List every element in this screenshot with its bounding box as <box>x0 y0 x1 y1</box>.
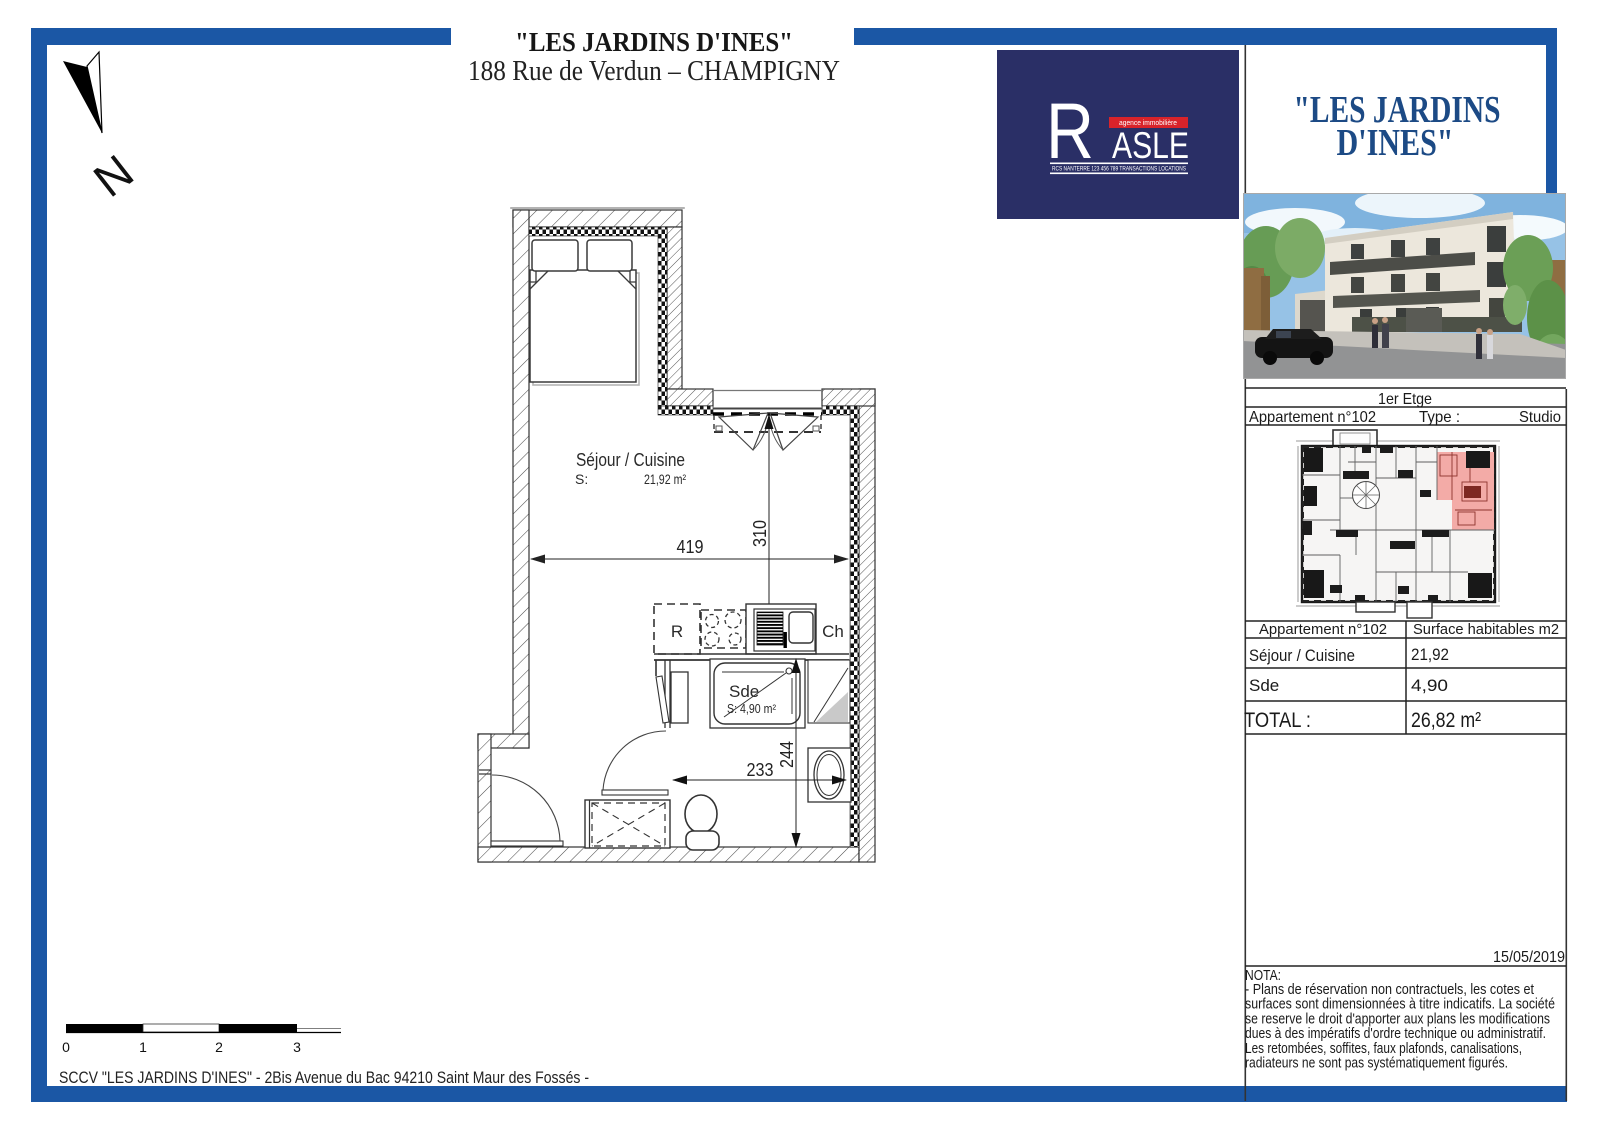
svg-text:26,82 m²: 26,82 m² <box>1411 709 1481 732</box>
svg-text:D'INES": D'INES" <box>1337 122 1454 164</box>
svg-text:Appartement n°102: Appartement n°102 <box>1249 409 1376 426</box>
svg-text:1er Etge: 1er Etge <box>1378 391 1432 408</box>
svg-text:Sde: Sde <box>1249 676 1279 695</box>
svg-text:21,92: 21,92 <box>1411 645 1449 664</box>
svg-text:Sde: Sde <box>729 682 759 701</box>
svg-text:RCS NANTERRE 123 456 789 TRANS: RCS NANTERRE 123 456 789 TRANSACTIONS LO… <box>1052 166 1186 173</box>
svg-text:SCCV "LES JARDINS D'INES" - 2B: SCCV "LES JARDINS D'INES" - 2Bis Avenue … <box>59 1068 589 1087</box>
svg-text:Studio: Studio <box>1519 409 1561 426</box>
svg-text:310: 310 <box>750 520 770 547</box>
svg-text:Ch: Ch <box>822 622 844 641</box>
svg-text:0: 0 <box>62 1039 70 1055</box>
svg-text:1: 1 <box>139 1039 147 1055</box>
svg-text:419: 419 <box>677 537 704 557</box>
svg-text:S:: S: <box>575 471 588 487</box>
svg-text:radiateurs ne sont pas systéma: radiateurs ne sont pas systématiquement … <box>1245 1055 1508 1072</box>
svg-text:21,92 m²: 21,92 m² <box>644 471 686 487</box>
svg-text:R: R <box>671 622 683 641</box>
svg-text:ASLE: ASLE <box>1112 125 1189 166</box>
svg-text:TOTAL :: TOTAL : <box>1244 709 1311 732</box>
svg-text:233: 233 <box>747 760 774 780</box>
svg-text:Surface habitables m2: Surface habitables m2 <box>1413 621 1559 638</box>
svg-text:Type :: Type : <box>1419 409 1460 426</box>
svg-text:Séjour / Cuisine: Séjour / Cuisine <box>576 450 685 470</box>
svg-text:R: R <box>1046 86 1094 175</box>
svg-text:3: 3 <box>293 1039 301 1055</box>
svg-text:4,90: 4,90 <box>1411 676 1448 695</box>
svg-text:Séjour / Cuisine: Séjour / Cuisine <box>1249 646 1355 665</box>
svg-text:188 Rue de Verdun – CHAMPIGNY: 188 Rue de Verdun – CHAMPIGNY <box>468 56 840 87</box>
svg-text:"LES JARDINS D'INES": "LES JARDINS D'INES" <box>515 27 793 57</box>
svg-text:15/05/2019: 15/05/2019 <box>1493 949 1565 966</box>
svg-text:2: 2 <box>215 1039 223 1055</box>
svg-text:244: 244 <box>777 741 797 768</box>
svg-text:S: 4,90 m²: S: 4,90 m² <box>727 701 777 716</box>
svg-text:Appartement n°102: Appartement n°102 <box>1259 621 1387 638</box>
